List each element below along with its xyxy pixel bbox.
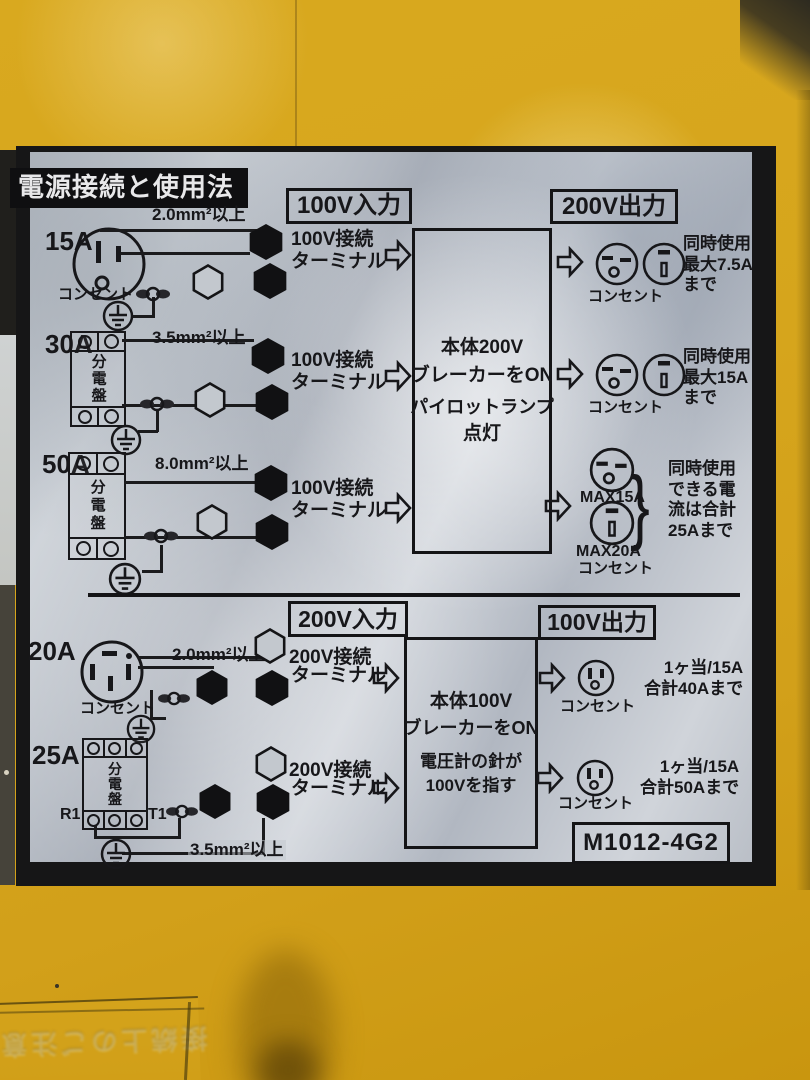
row2-out-note: 同時使用 最大15A まで bbox=[683, 347, 751, 409]
section2-center-box: 本体100V ブレーカーをON 電圧計の針が 100Vを指す bbox=[404, 637, 538, 849]
painted-over-text: 接続上のご注意 bbox=[0, 1022, 208, 1059]
panel-seam bbox=[295, 0, 297, 146]
left-edge-speck bbox=[4, 770, 9, 775]
row2-source-label: 分電盤 bbox=[89, 354, 106, 405]
speck bbox=[55, 984, 59, 988]
arrow-right-icon bbox=[384, 492, 412, 524]
row5-source-label: 分電盤 bbox=[107, 762, 123, 807]
center1-line3: パイロットランプ bbox=[410, 397, 553, 418]
center2-line3: 電圧計の針が bbox=[420, 752, 522, 772]
ground-icon bbox=[100, 838, 132, 870]
row4-out-caption: コンセント bbox=[560, 698, 635, 715]
section-divider bbox=[88, 593, 740, 597]
plate-title: 電源接続と使用法 bbox=[10, 173, 234, 203]
plate-title-bar: 電源接続と使用法 bbox=[10, 168, 248, 208]
row4-out-note: 1ヶ当/15A 合計40Aまで bbox=[644, 658, 743, 699]
section1-input-header: 100V入力 bbox=[297, 192, 401, 220]
section2-output-header-box: 100V出力 bbox=[538, 605, 656, 640]
ground-icon bbox=[102, 300, 134, 332]
center2-line2: ブレーカーをON bbox=[404, 718, 539, 739]
cable-clamp-icon bbox=[166, 804, 198, 819]
row1-out-note: 同時使用 最大7.5A まで bbox=[683, 234, 753, 296]
distribution-board-icon: 分電盤 bbox=[82, 738, 148, 830]
row2-terminal-label2: ターミナル bbox=[291, 372, 386, 394]
cable-clamp-icon bbox=[144, 528, 178, 544]
arrow-right-icon bbox=[536, 762, 564, 794]
plug-20a-icon bbox=[78, 638, 146, 706]
brace-glyph: } bbox=[630, 458, 650, 553]
outlet-200v-20a-icon bbox=[641, 352, 687, 398]
row2-out-caption: コンセント bbox=[588, 399, 663, 416]
row5-out-caption: コンセント bbox=[558, 795, 633, 812]
center1-line4: 点灯 bbox=[463, 423, 501, 445]
center2-line4: 100Vを指す bbox=[426, 776, 517, 796]
row1-terminal-label2: ターミナル bbox=[291, 251, 386, 273]
row5-r1-label: R1 bbox=[60, 806, 80, 824]
ground-icon bbox=[108, 562, 142, 596]
cable-clamp-icon bbox=[140, 396, 174, 412]
section1-center-box: 本体200V ブレーカーをON パイロットランプ 点灯 bbox=[412, 228, 552, 554]
left-edge-light bbox=[0, 335, 17, 585]
arrow-right-icon bbox=[556, 246, 584, 278]
outlet-100v-icon bbox=[575, 758, 615, 798]
outlet-100v-icon bbox=[576, 658, 616, 698]
arrow-right-icon bbox=[372, 772, 400, 804]
right-edge-shade bbox=[796, 90, 810, 890]
center2-line1: 本体100V bbox=[430, 691, 512, 713]
section1-input-header-box: 100V入力 bbox=[286, 188, 412, 224]
machine-panel-photo: 電源接続と使用法 100V入力 200V出力 本体200V ブレーカーをON パ… bbox=[0, 0, 810, 1080]
row1-out-caption: コンセント bbox=[588, 288, 663, 305]
cable-clamp-icon bbox=[136, 286, 170, 302]
row3-out-note: 同時使用 できる電 流は合計 25Aまで bbox=[668, 459, 736, 542]
arrow-right-icon bbox=[544, 490, 572, 522]
row3-terminal-label2: ターミナル bbox=[291, 500, 386, 522]
outlet-200v-15a-icon bbox=[588, 446, 636, 494]
center1-line2: ブレーカーをON bbox=[411, 365, 554, 387]
arrow-right-icon bbox=[384, 360, 412, 392]
row5-wire-label: 3.5mm²以上 bbox=[188, 840, 286, 860]
row3-source-label: 分電盤 bbox=[88, 479, 105, 533]
left-edge-lower bbox=[0, 585, 15, 885]
arrow-right-icon bbox=[556, 358, 584, 390]
arrow-right-icon bbox=[372, 662, 400, 694]
row1-wire-label: 2.0mm²以上 bbox=[152, 205, 246, 225]
section2-output-header: 100V出力 bbox=[547, 609, 647, 635]
section2-input-header: 200V入力 bbox=[298, 606, 398, 632]
distribution-board-icon: 分電盤 bbox=[68, 452, 126, 560]
model-number: M1012-4G2 bbox=[583, 829, 719, 857]
cable-clamp-icon bbox=[158, 691, 190, 706]
section1-output-header: 200V出力 bbox=[562, 193, 666, 221]
distribution-board-icon: 分電盤 bbox=[70, 331, 126, 427]
row3-out-caption: コンセント bbox=[578, 560, 653, 577]
row4-amp: 20A bbox=[28, 637, 76, 667]
row2-terminal-label1: 100V接続 bbox=[291, 350, 373, 372]
arrow-right-icon bbox=[384, 239, 412, 271]
outlet-200v-15a-icon bbox=[594, 241, 640, 287]
model-number-box: M1012-4G2 bbox=[572, 822, 730, 864]
arrow-right-icon bbox=[538, 662, 566, 694]
row4-wire-label: 2.0mm²以上 bbox=[172, 645, 266, 665]
row2-wire-label: 3.5mm²以上 bbox=[152, 328, 246, 348]
section1-output-header-box: 200V出力 bbox=[550, 189, 678, 224]
row1-terminal-label1: 100V接続 bbox=[291, 229, 373, 251]
outlet-200v-20a-icon bbox=[641, 241, 687, 287]
section2-input-header-box: 200V入力 bbox=[288, 601, 408, 637]
outlet-200v-20a-icon bbox=[588, 499, 636, 547]
center1-line1: 本体200V bbox=[441, 337, 523, 359]
row5-out-note: 1ヶ当/15A 合計50Aまで bbox=[640, 757, 739, 798]
row3-wire-label: 8.0mm²以上 bbox=[155, 454, 249, 474]
painted-over-plate: 接続上のご注意 bbox=[0, 996, 202, 1080]
corner-shadow bbox=[740, 0, 810, 100]
outlet-200v-15a-icon bbox=[594, 352, 640, 398]
row3-terminal-label1: 100V接続 bbox=[291, 478, 373, 500]
row5-t1-label: T1 bbox=[148, 806, 167, 824]
row5-amp: 25A bbox=[32, 741, 80, 771]
